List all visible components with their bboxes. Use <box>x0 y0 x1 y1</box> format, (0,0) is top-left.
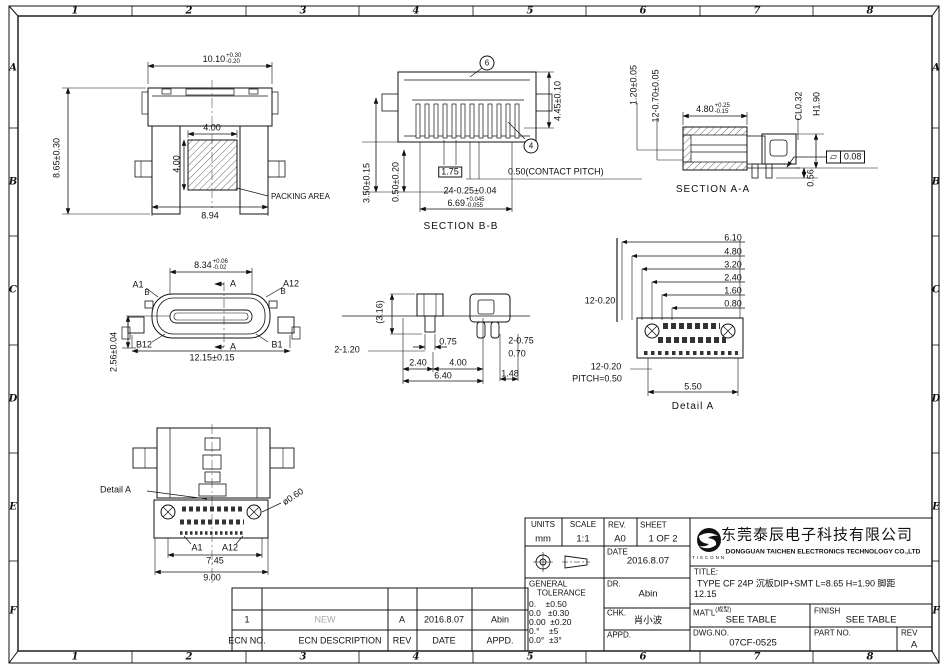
dim-aa-standoff: 0.56 <box>807 169 816 187</box>
matl-value: SEE TABLE <box>726 615 777 625</box>
chk-label: CHK. <box>607 609 626 618</box>
dim-aa-row1: 1.20±0.05 <box>630 65 639 105</box>
dim-bb-height: 4.45±0.10 <box>554 81 563 121</box>
zone-col-7: 7 <box>754 6 761 17</box>
date-value: 2016.8.07 <box>627 556 669 566</box>
zone-row-b2: B <box>932 177 940 188</box>
ecn-row-rev: A <box>399 616 405 625</box>
dwg-no-value: 07CF-0525 <box>729 638 777 648</box>
dim-packing-square-height: 4.00 <box>173 155 182 173</box>
ecn-header-appd: APPD. <box>486 637 513 646</box>
zone-col-4b: 4 <box>413 652 420 663</box>
flatness-control-frame: ▱0.08 <box>826 151 865 164</box>
dim-bottom-745: 7.45 <box>206 557 224 566</box>
company-name-en: DONGGUAN TAICHEN ELECTRONICS TECHNOLOGY … <box>726 550 921 557</box>
view-packing <box>62 62 285 216</box>
zone-col-2: 2 <box>186 6 193 17</box>
dim-pitch-050: PITCH=0.50 <box>572 375 622 384</box>
general-tolerance-label-1: GENERAL <box>529 580 567 589</box>
dim-body-width: 8.94 <box>201 212 219 221</box>
dim-pins-bottom: 12-0.20 <box>591 363 622 372</box>
dim-side-400: 4.00 <box>449 359 467 368</box>
flatness-icon: ▱ <box>827 152 840 163</box>
dr-label: DR. <box>607 580 621 589</box>
view-section-bb <box>362 68 642 212</box>
dim-bb-pin-length: 3.50±0.15 <box>363 163 372 203</box>
ecn-header-rev: REV <box>393 637 412 646</box>
dim-shell-width: 10.10+0.30-0.20 <box>203 53 242 65</box>
bottom-pin-a1: A1 <box>191 544 202 553</box>
zone-col-6: 6 <box>640 6 647 17</box>
dim-front-height: 2.56±0.04 <box>110 332 119 372</box>
scale-value: 1:1 <box>576 534 589 544</box>
zone-row-d: D <box>9 394 18 405</box>
title-label: TITLE: <box>694 568 718 577</box>
zone-row-a2: A <box>932 63 940 74</box>
dim-detail-550: 5.50 <box>684 383 702 392</box>
dim-shell-height: 8.65±0.30 <box>53 138 62 178</box>
zone-row-c: C <box>9 285 17 296</box>
zone-row-e2: E <box>932 502 940 513</box>
zone-row-b: B <box>9 177 17 188</box>
dim-bb-pin-offset: 0.50±0.20 <box>392 162 401 202</box>
sheet-value: 1 OF 2 <box>648 534 677 544</box>
dr-value: Abin <box>638 589 657 599</box>
rev-value: A0 <box>614 534 626 544</box>
dim-stack-320: 3.20 <box>724 261 742 270</box>
pin-label-a1: A1 <box>132 281 143 290</box>
ecn-header-no: ECN NO. <box>228 637 266 646</box>
dim-aa-depth: 4.80+0.25-0.15 <box>696 103 730 115</box>
balloon-6: 6 <box>480 56 495 71</box>
rev-col-value: A <box>911 640 917 650</box>
engineering-drawing-sheet: 1 2 3 4 5 6 7 8 1 2 3 4 5 6 7 8 A B C D … <box>0 0 949 670</box>
dim-side-ref: (3.16) <box>376 300 385 324</box>
rev-col-label: REV <box>901 629 917 638</box>
tolerance-row-5: 0.0° ±3° <box>529 635 562 645</box>
packing-area-label: PACKING AREA <box>271 193 330 201</box>
zone-row-f2: F <box>932 606 939 617</box>
title-line2: 12.15 <box>694 589 717 599</box>
part-no-label: PART NO. <box>814 629 851 638</box>
zone-col-1b: 1 <box>72 652 79 663</box>
drawing-linework <box>0 0 949 670</box>
balloon-4: 4 <box>524 139 539 154</box>
zone-row-a: A <box>9 63 17 74</box>
section-b-mark-right: B <box>280 288 285 296</box>
finish-value: SEE TABLE <box>846 615 897 625</box>
ecn-row-appd: Abin <box>491 616 509 625</box>
dim-stack-160: 1.60 <box>724 287 742 296</box>
ecn-row-date: 2016.8.07 <box>424 616 464 625</box>
zone-row-e: E <box>9 502 17 513</box>
zone-col-5b: 5 <box>527 652 534 663</box>
zone-col-3: 3 <box>300 6 307 17</box>
detail-a-callout: Detail A <box>100 486 131 495</box>
zone-row-d2: D <box>932 394 941 405</box>
title-line1: TYPE CF 24P 沉板DIP+SMT L=8.65 H=1.90 脚距 <box>697 577 896 590</box>
dim-stack-480: 4.80 <box>724 248 742 257</box>
general-tolerance-label-2: TOLERANCE <box>537 589 586 598</box>
company-name-cn: 东莞泰辰电子科技有限公司 <box>721 528 913 543</box>
bottom-pin-a12: A12 <box>222 544 238 553</box>
tisconn-logo <box>697 528 721 552</box>
dim-aa-row2: 12-0.70±0.05 <box>652 70 661 123</box>
ecn-row-no: 1 <box>244 616 249 625</box>
logo-text: TISCONN <box>692 556 726 561</box>
units-value: mm <box>535 534 551 544</box>
ecn-header-description: ECN DESCRIPTION <box>298 637 381 646</box>
dim-side-640: 6.40 <box>434 372 452 381</box>
dim-front-width: 12.15±0.15 <box>190 354 235 363</box>
chk-value: 肖小波 <box>634 616 663 626</box>
dim-stack-610: 6.10 <box>724 234 742 243</box>
dim-side-2x075: 2-0.75 <box>508 337 534 346</box>
sheet-label: SHEET <box>640 521 667 530</box>
zone-row-f: F <box>9 606 16 617</box>
zone-col-2b: 2 <box>186 652 193 663</box>
appd-label: APPD. <box>607 631 631 640</box>
dim-tongue-width-bb: 6.69+0.045-0.055 <box>447 197 484 209</box>
dim-stack-080: 0.80 <box>724 300 742 309</box>
scale-label: SCALE <box>570 521 596 529</box>
dim-side-148: 1.48 <box>501 370 519 379</box>
dim-bottom-900: 9.00 <box>203 574 221 583</box>
dim-contact-pitch: 0.50(CONTACT PITCH) <box>508 168 604 177</box>
section-a-mark-top: A <box>230 280 236 289</box>
dwg-no-label: DWG.NO. <box>693 629 729 638</box>
dim-side-legs: 2-1.20 <box>334 346 360 355</box>
zone-col-1: 1 <box>72 6 79 17</box>
dim-aa-c: CL0.32 <box>795 91 804 120</box>
zone-col-3b: 3 <box>300 652 307 663</box>
pin-label-b12: B12 <box>136 341 152 350</box>
section-b-mark-left: B <box>144 289 149 297</box>
view-section-aa <box>637 103 878 178</box>
date-label: DATE <box>607 548 628 557</box>
dim-side-240: 2.40 <box>409 359 427 368</box>
dim-pins-top: 12-0.20 <box>585 297 616 306</box>
section-a-mark-bottom: A <box>230 343 236 352</box>
dim-side-070: 0.70 <box>508 350 526 359</box>
zone-col-5: 5 <box>527 6 534 17</box>
ecn-header-date: DATE <box>432 637 455 646</box>
section-bb-label: SECTION B-B <box>424 222 499 232</box>
dim-stack-240: 2.40 <box>724 274 742 283</box>
zone-row-c2: C <box>932 285 940 296</box>
dim-bb-basic: 1.75 <box>438 167 462 178</box>
dim-contact-width: 24-0.25±0.04 <box>444 187 497 196</box>
dim-side-075: 0.75 <box>439 338 457 347</box>
detail-a-label: Detail A <box>672 402 714 412</box>
dim-tongue-width: 8.34+0.06-0.02 <box>194 259 228 271</box>
finish-label: FINISH <box>814 607 840 616</box>
zone-col-6b: 6 <box>640 652 647 663</box>
ecn-row-description: NEW <box>315 616 336 625</box>
zone-col-7b: 7 <box>754 652 761 663</box>
units-label: UNITS <box>531 521 555 529</box>
dim-packing-square-width: 4.00 <box>203 124 221 133</box>
projection-symbol-icon <box>533 552 590 572</box>
section-aa-label: SECTION A-A <box>676 185 750 195</box>
dim-aa-height: H1.90 <box>813 92 822 116</box>
rev-label: REV. <box>608 521 626 530</box>
zone-col-8: 8 <box>867 6 874 17</box>
pin-label-b1: B1 <box>271 341 282 350</box>
zone-col-4: 4 <box>413 6 420 17</box>
zone-col-8b: 8 <box>867 652 874 663</box>
